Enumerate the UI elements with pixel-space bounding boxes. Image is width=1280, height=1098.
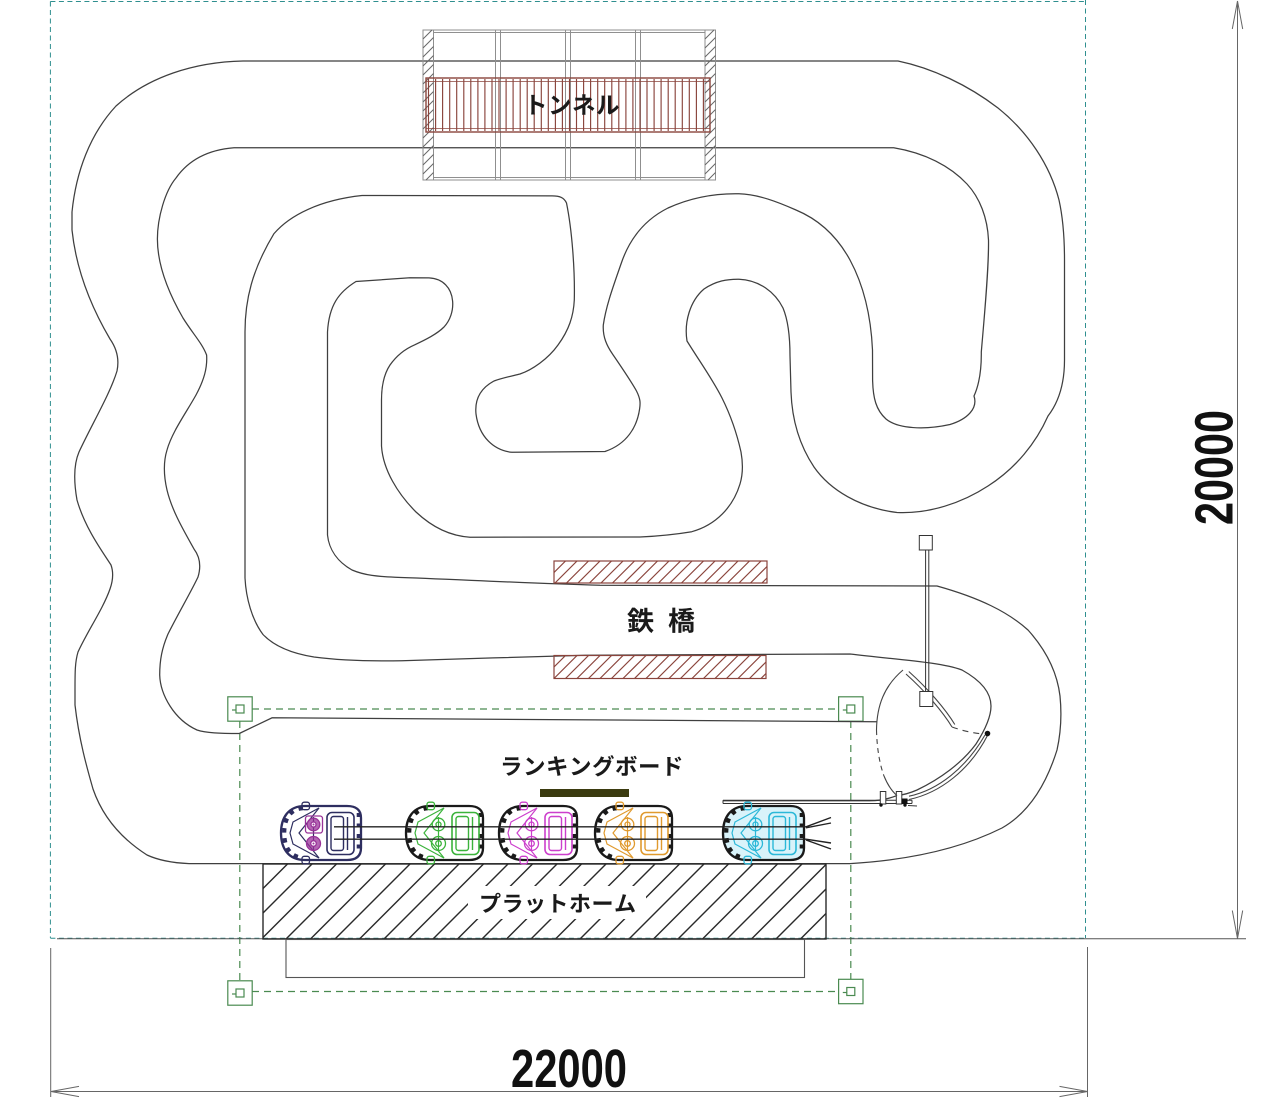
svg-text:22000: 22000 xyxy=(511,1039,627,1098)
svg-text:20000: 20000 xyxy=(1185,410,1245,525)
